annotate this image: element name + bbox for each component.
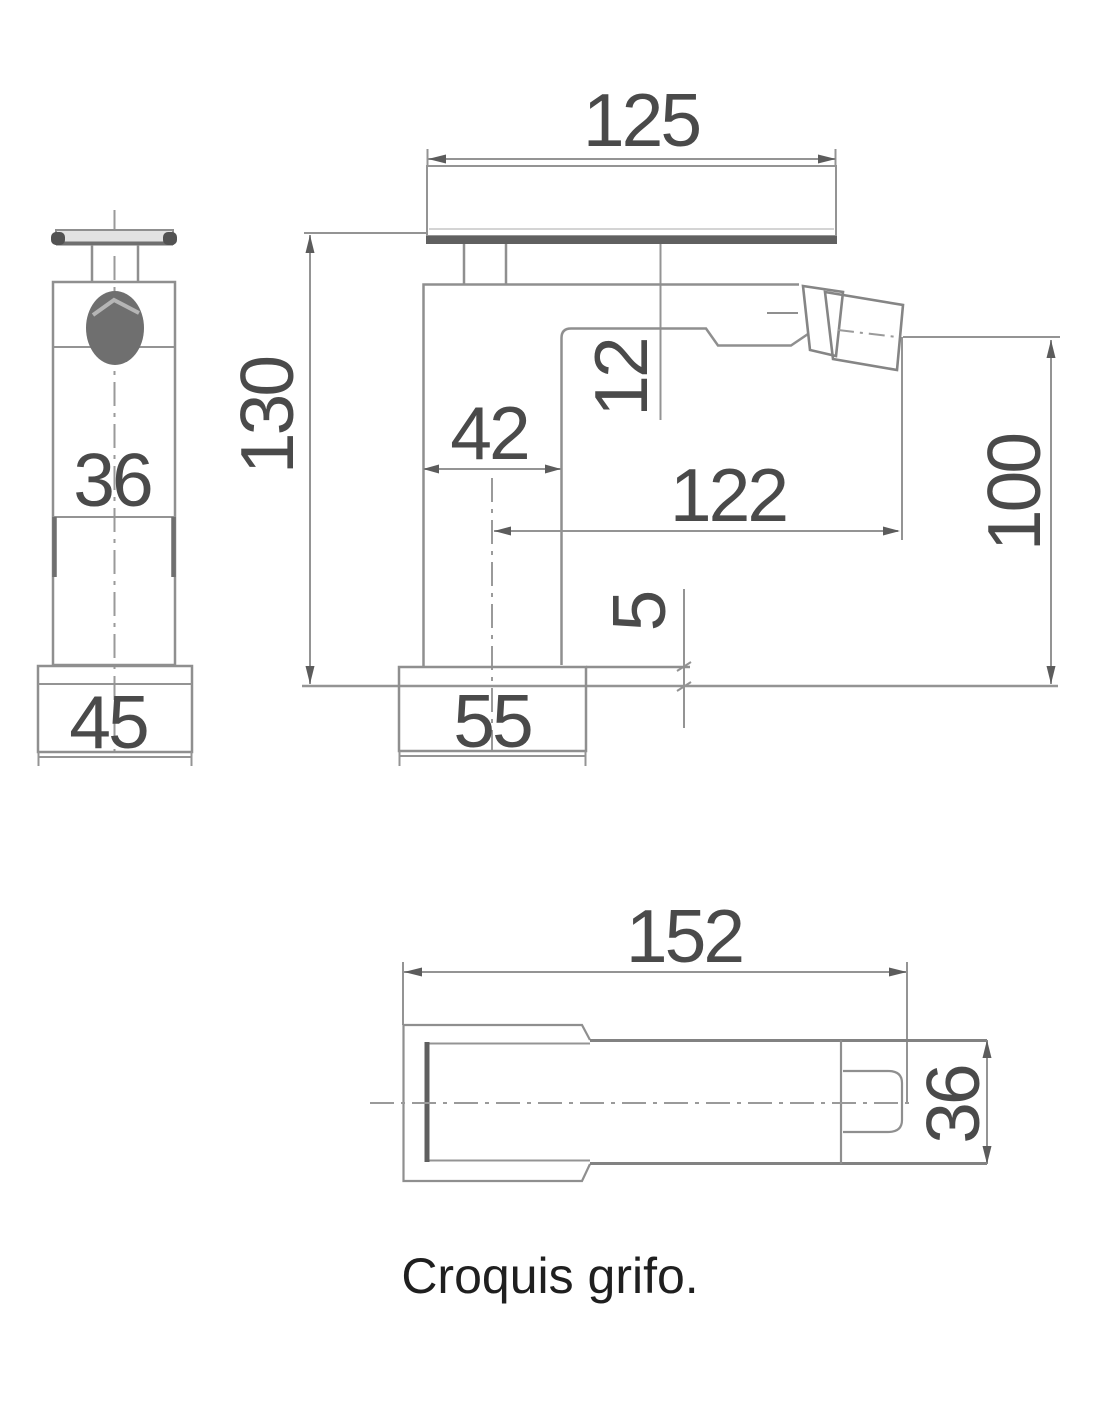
svg-text:122: 122 bbox=[670, 453, 786, 537]
svg-text:125: 125 bbox=[583, 78, 699, 162]
svg-text:36: 36 bbox=[911, 1066, 995, 1144]
svg-text:Croquis grifo.: Croquis grifo. bbox=[401, 1248, 698, 1304]
svg-text:45: 45 bbox=[69, 680, 147, 764]
svg-text:130: 130 bbox=[225, 358, 309, 474]
svg-text:42: 42 bbox=[450, 391, 527, 475]
svg-text:55: 55 bbox=[453, 679, 531, 763]
svg-text:5: 5 bbox=[597, 592, 681, 631]
svg-text:36: 36 bbox=[73, 438, 151, 522]
svg-text:152: 152 bbox=[626, 894, 742, 978]
svg-text:12: 12 bbox=[579, 339, 663, 416]
svg-text:100: 100 bbox=[972, 435, 1056, 551]
